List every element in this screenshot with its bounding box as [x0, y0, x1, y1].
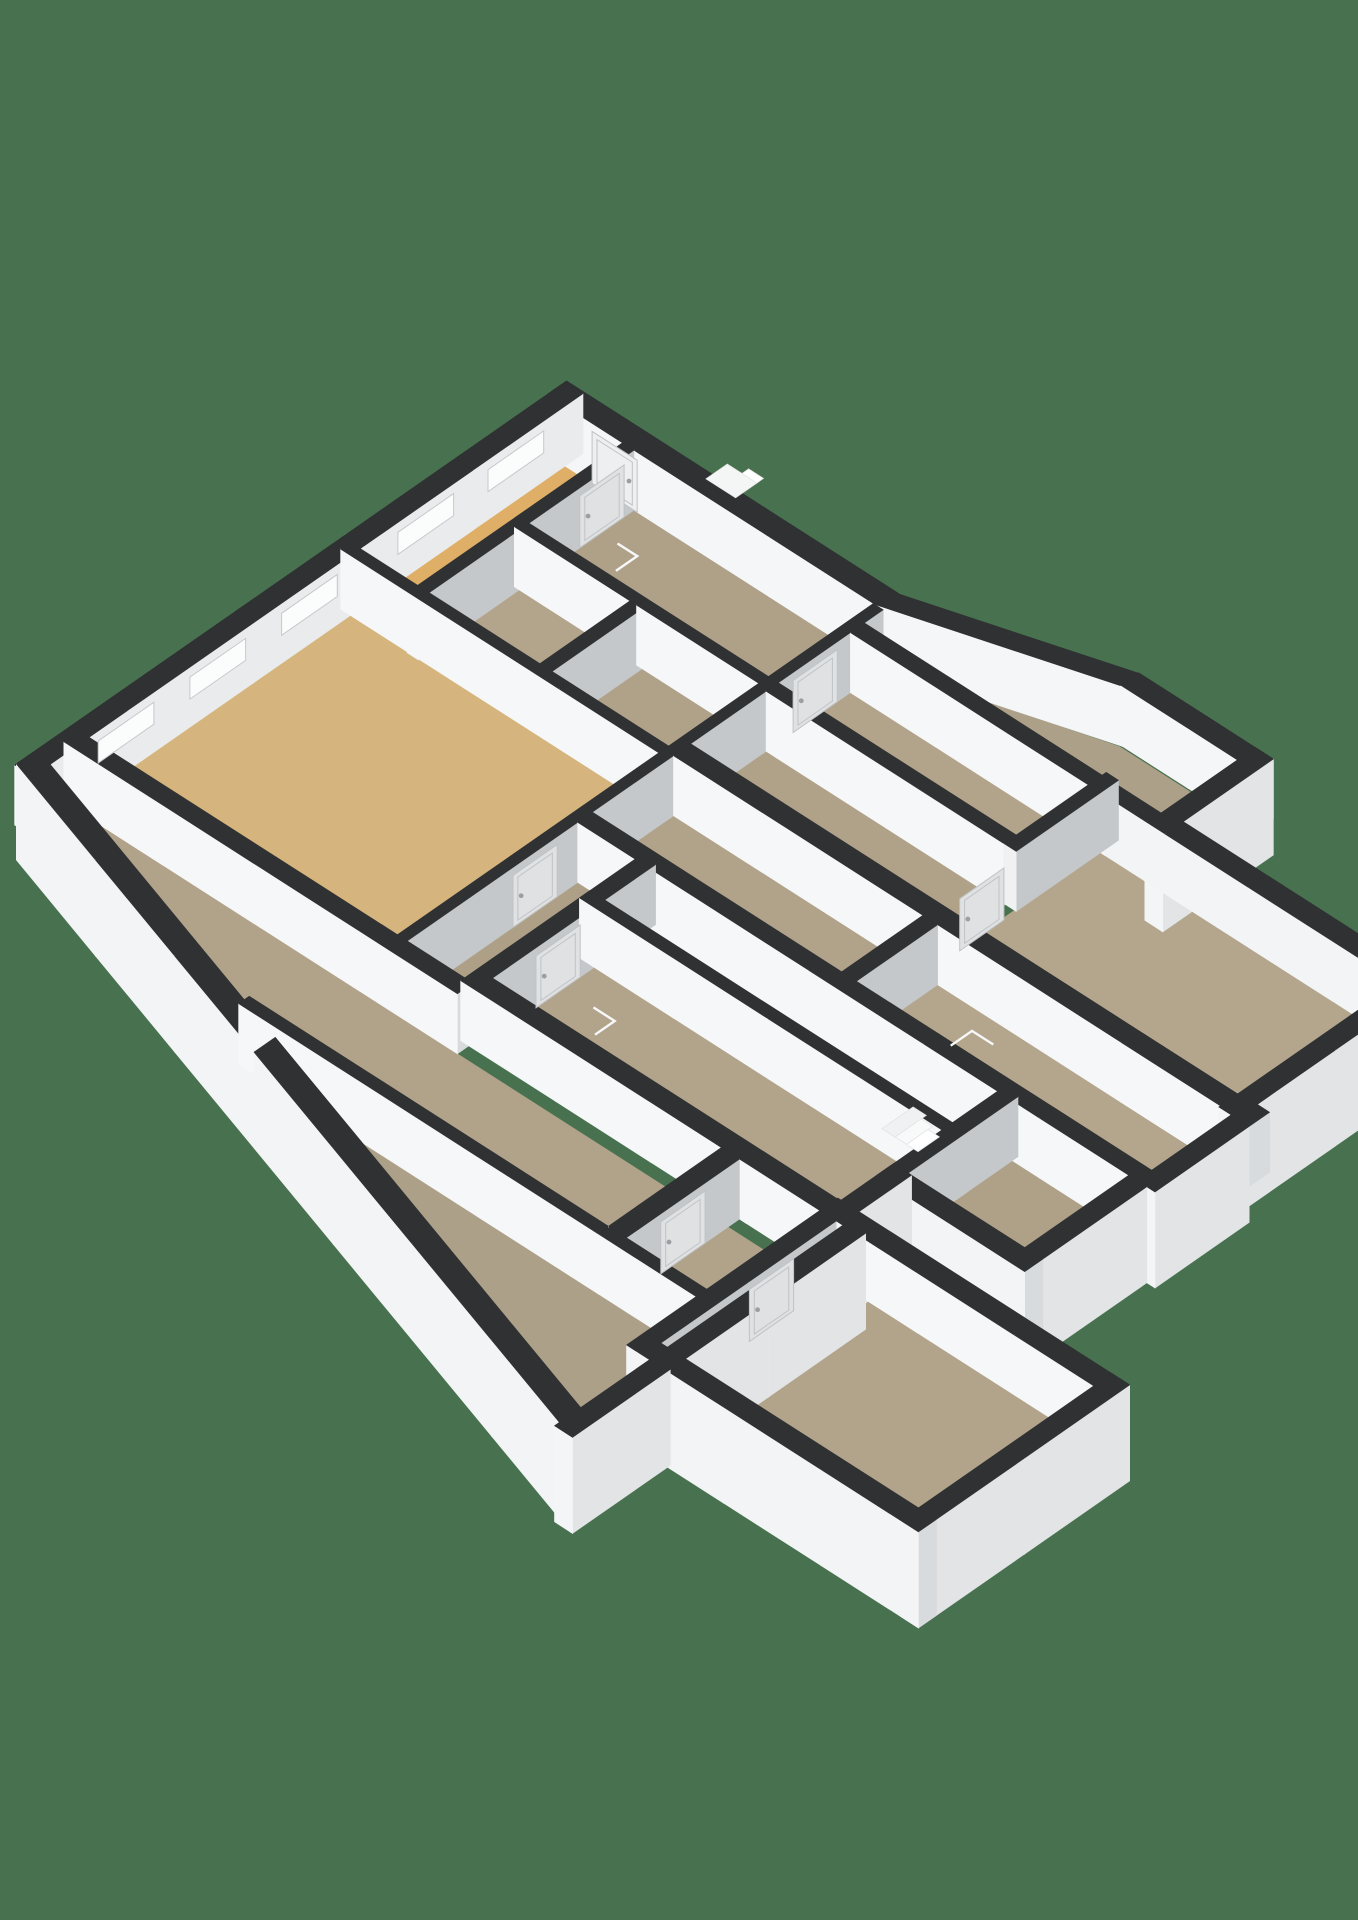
door-handle-0-wall-int-divider-ne [965, 917, 970, 922]
wall-ext-strips-east-face-s [555, 1426, 573, 1534]
floorplan-3d-viewport [0, 0, 1358, 1920]
door-handle-0-wall-wing-west [755, 1307, 760, 1312]
door-handle-0-wall-int-d3 [542, 974, 547, 979]
door-handle-0-wall-ext-ne-a [627, 479, 632, 484]
wall-int-divider-ne-face-s [1004, 844, 1016, 912]
wall-wing-south-face-e [918, 1519, 936, 1628]
door-handle-0-wall-int-hall [586, 514, 591, 519]
door-handle-0-wall-stub-s1 [667, 1240, 672, 1245]
floorplan-3d-canvas [0, 0, 1358, 1920]
door-handle-0-wall-spine [799, 698, 804, 703]
door-handle-1-wall-spine [519, 893, 524, 898]
